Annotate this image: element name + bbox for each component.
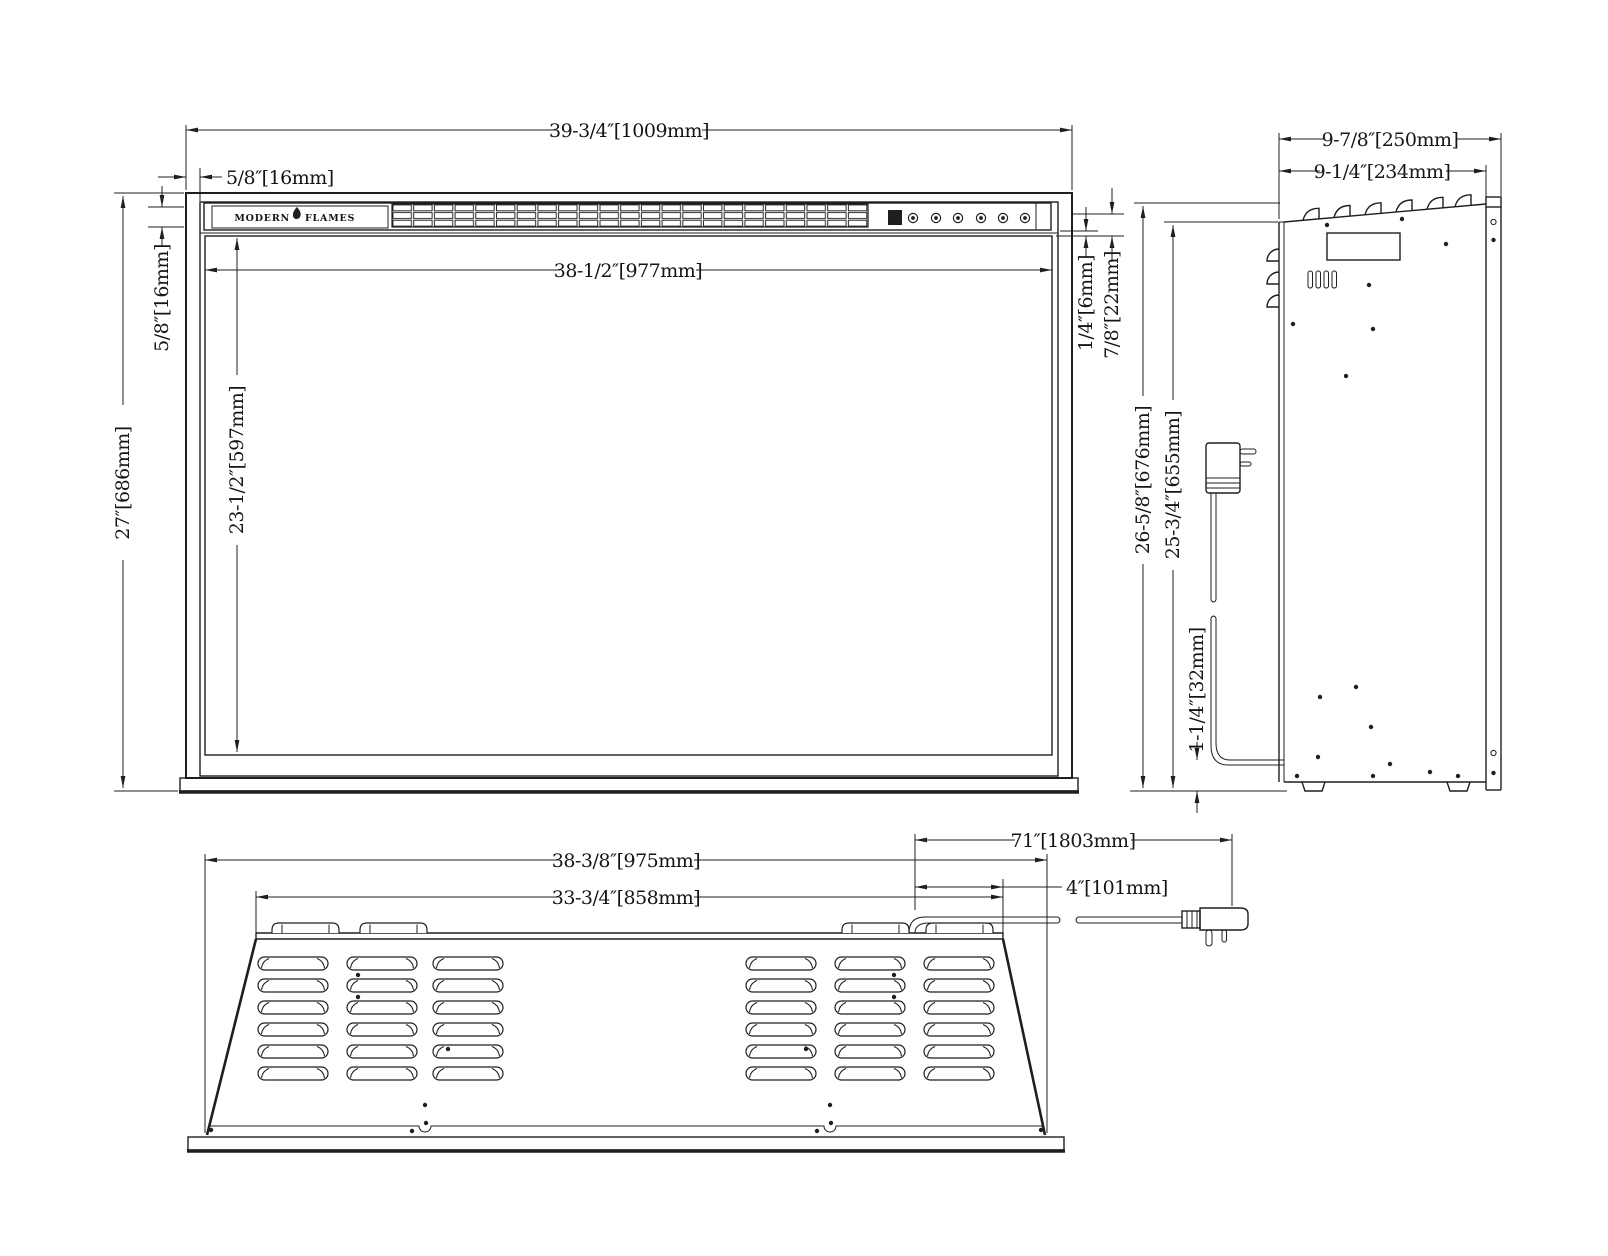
control-panel <box>888 203 1036 230</box>
dimension-drawing: MODERN FLAMES <box>0 0 1608 1256</box>
side-dimensions: 9-7/8″[250mm] 9-1/4″[234mm] 26-5/8″[676m… <box>1130 128 1501 813</box>
top-front-edge <box>209 1126 1043 1132</box>
heater-grille <box>392 204 868 227</box>
drawing-canvas: MODERN FLAMES <box>0 0 1608 1256</box>
top-view <box>187 908 1248 1151</box>
front-view: MODERN FLAMES <box>179 193 1079 792</box>
side-screws <box>1291 217 1460 778</box>
dim-side-overall-depth: 9-7/8″[250mm] <box>1322 129 1459 151</box>
top-rear-tabs <box>272 923 993 933</box>
side-foot-front <box>1302 782 1325 791</box>
dim-front-top-lip: 5/8″[16mm] <box>151 244 173 352</box>
power-plug-icon <box>1206 443 1256 493</box>
front-glass-opening <box>205 236 1052 755</box>
front-inner-face <box>200 202 1058 776</box>
side-power-cord <box>1206 443 1284 765</box>
dim-top-vent-span: 33-3/4″[858mm] <box>552 887 700 909</box>
dim-front-glass-width: 38-1/2″[977mm] <box>554 260 702 282</box>
top-screws <box>209 973 1043 1133</box>
dim-side-body-height: 25-3/4″[655mm] <box>1162 411 1184 559</box>
dim-front-trim-height: 7/8″[22mm] <box>1101 251 1123 359</box>
dim-side-overall-height: 26-5/8″[676mm] <box>1132 406 1154 554</box>
front-base-bar <box>179 778 1079 792</box>
dim-side-body-depth: 9-1/4″[234mm] <box>1314 161 1451 183</box>
flame-icon <box>293 207 301 219</box>
dim-front-glass-reveal: 1/4″[6mm] <box>1075 255 1097 351</box>
top-left-edge <box>207 939 256 1135</box>
dim-top-cord-offset: 4″[101mm] <box>1066 877 1168 899</box>
front-header-strip: MODERN FLAMES <box>204 203 1051 230</box>
side-vent-slots <box>1308 271 1337 288</box>
dim-top-cord-length: 71″[1803mm] <box>1011 830 1136 852</box>
brand-name-left: MODERN <box>234 213 290 224</box>
power-plug-top-icon <box>1182 908 1248 946</box>
top-right-edge <box>1003 939 1045 1135</box>
brand-name-right: FLAMES <box>305 213 355 224</box>
side-front-louvers <box>1267 249 1279 307</box>
dim-side-cord-height: 1-1/4″[32mm] <box>1186 627 1208 752</box>
side-access-cutout <box>1327 233 1400 260</box>
side-foot-rear <box>1447 782 1470 791</box>
dim-front-side-lip: 5/8″[16mm] <box>226 167 334 189</box>
dim-top-body-width: 38-3/8″[975mm] <box>552 850 700 872</box>
side-rear-flange <box>1486 197 1501 790</box>
dim-front-overall-width: 39-3/4″[1009mm] <box>549 120 709 142</box>
top-louver-slots <box>258 957 994 1080</box>
control-buttons <box>908 213 1029 222</box>
side-view <box>1206 195 1501 791</box>
display-window <box>888 210 902 225</box>
dim-front-glass-height: 23-1/2″[597mm] <box>226 386 248 534</box>
dim-front-overall-height: 27″[686mm] <box>112 426 134 539</box>
top-front-bar <box>187 1137 1065 1151</box>
